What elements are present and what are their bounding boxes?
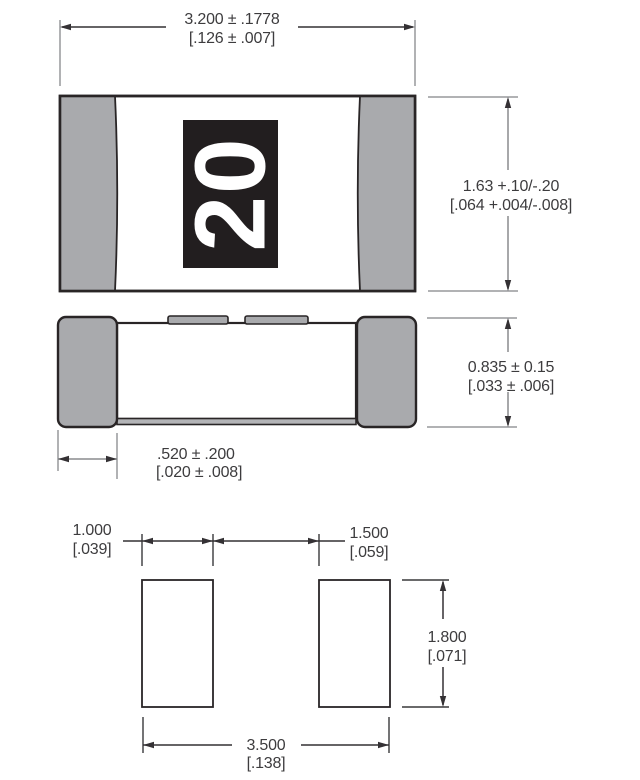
- dim-body-height-inch: [.064 +.004/-.008]: [450, 197, 572, 214]
- dim-terminal-width-mm: .520 ± .200: [157, 446, 235, 463]
- arrowhead-down: [440, 696, 446, 707]
- dim-thickness-inch: [.033 ± .006]: [468, 378, 554, 395]
- dim-terminal-width: .520 ± .200 [.020 ± .008]: [58, 430, 242, 481]
- top-coating-tab: [168, 316, 228, 324]
- chip-body-side-view: [117, 323, 356, 419]
- left-terminal-top-view: [60, 96, 117, 291]
- top-view: 3.200 ± .1778 [.126 ± .007] 20 1.63 +.10…: [60, 11, 572, 291]
- dim-pattern-span-mm: 3.500: [246, 737, 285, 754]
- arrowhead-down: [505, 280, 511, 291]
- bottom-electrode-strip: [117, 419, 356, 425]
- side-view: 0.835 ± 0.15 [.033 ± .006] .520 ± .200 […: [58, 316, 555, 481]
- arrowhead-right: [378, 742, 389, 748]
- arrowhead-left: [143, 742, 154, 748]
- left-terminal-side-view: [58, 317, 117, 427]
- dim-body-width-mm: 3.200 ± .1778: [184, 11, 279, 28]
- dim-pattern-span: 3.500 [.138]: [143, 717, 389, 772]
- left-pad: [142, 580, 213, 707]
- arrowhead-left: [60, 24, 71, 30]
- dim-body-width: 3.200 ± .1778 [.126 ± .007]: [60, 11, 415, 86]
- right-terminal-top-view: [358, 96, 415, 291]
- dim-pad-height-inch: [.071]: [428, 648, 467, 665]
- dim-body-width-inch: [.126 ± .007]: [189, 30, 275, 47]
- dim-thickness-mm: 0.835 ± 0.15: [468, 359, 555, 376]
- dim-pattern-span-inch: [.138]: [247, 755, 286, 772]
- arrowhead-up: [440, 580, 446, 591]
- dim-gap-mm: 1.500: [349, 525, 388, 542]
- arrowhead-up: [505, 97, 511, 108]
- dim-pad-width-inch: [.039]: [73, 541, 112, 558]
- right-pad: [319, 580, 390, 707]
- arrowhead-right: [106, 456, 117, 462]
- dim-thickness: 0.835 ± 0.15 [.033 ± .006]: [427, 318, 555, 427]
- arrowhead-right: [404, 24, 415, 30]
- dim-body-height: 1.63 +.10/-.20 [.064 +.004/-.008]: [428, 97, 572, 291]
- dim-pad-height-mm: 1.800: [427, 629, 466, 646]
- right-terminal-side-view: [357, 317, 416, 427]
- arrowhead-down: [505, 416, 511, 427]
- dim-pad-height: 1.800 [.071]: [402, 580, 467, 707]
- dim-body-height-mm: 1.63 +.10/-.20: [463, 178, 560, 195]
- arrowhead-right: [308, 538, 319, 544]
- dim-pad-width-and-gap: 1.000 [.039] 1.500 [.059]: [72, 522, 388, 566]
- dim-pad-width-mm: 1.000: [72, 522, 111, 539]
- arrowhead-left: [213, 538, 224, 544]
- dim-terminal-width-inch: [.020 ± .008]: [156, 464, 242, 481]
- land-pattern: 1.000 [.039] 1.500 [.059] 1.800 [.071] 3…: [72, 522, 466, 772]
- arrowhead-left: [58, 456, 69, 462]
- arrowhead-right: [202, 538, 213, 544]
- marking-text: 20: [175, 136, 287, 251]
- dim-gap-inch: [.059]: [350, 544, 389, 561]
- top-coating-tab: [245, 316, 308, 324]
- arrowhead-up: [505, 318, 511, 329]
- component-dimension-drawing: 3.200 ± .1778 [.126 ± .007] 20 1.63 +.10…: [0, 0, 640, 780]
- arrowhead-left: [142, 538, 153, 544]
